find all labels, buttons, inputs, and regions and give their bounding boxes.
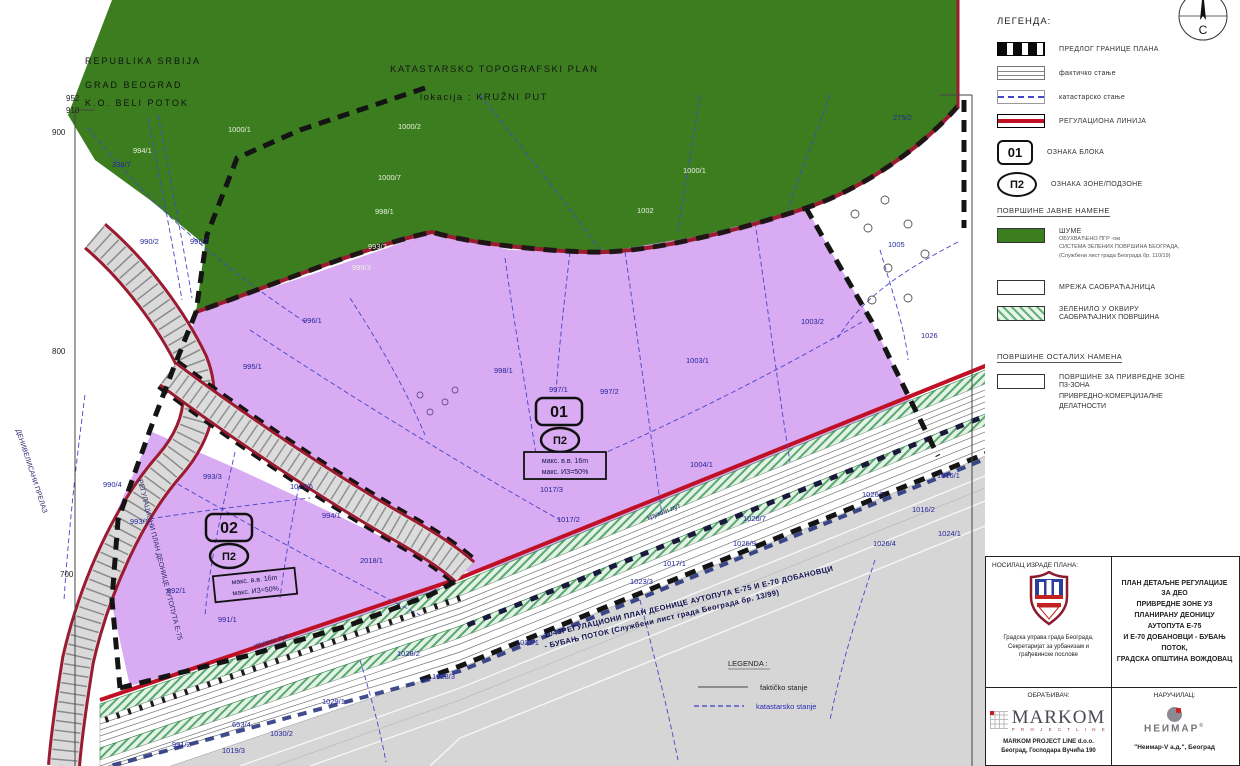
neimar-logo-text: НЕИМАР®: [1112, 723, 1237, 734]
header-republic: REPUBLIKA SRBIJA: [85, 56, 201, 66]
parcel-label: 991/1: [218, 615, 237, 624]
parcel-label: 995/1: [243, 362, 262, 371]
axis-label: 952: [66, 94, 80, 103]
svg-text:faktičko stanje: faktičko stanje: [760, 683, 808, 692]
parcel-label: 996/2: [190, 237, 209, 246]
parcel-label: 1002: [637, 206, 654, 215]
legend-item-forest: ШУМЕ ОБУХВАЋЕНО ПГР -ом СИСТЕМА ЗЕЛЕНИХ …: [997, 228, 1179, 260]
map-location: lokacija : KRUŽNI PUT: [420, 92, 548, 103]
parcel-label: 994/1: [133, 146, 152, 155]
legend-section-other: ПОВРШИНЕ ОСТАЛИХ НАМЕНА: [997, 352, 1122, 363]
legend-title: ЛЕГЕНДА:: [997, 16, 1051, 27]
parcel-label: 275/2: [893, 113, 912, 122]
plan-document: REPUBLIKA SRBIJA GRAD BEOGRAD K.O. BELI …: [0, 0, 1240, 766]
neimar-logo-icon: [1167, 707, 1182, 722]
header-cadastre-municipality: K.O. BELI POTOK: [85, 98, 189, 108]
economic-zone-symbol: [997, 374, 1045, 389]
axis-label: 900: [52, 128, 66, 137]
designer-cell: ОБРАЂИВАЧ: MARKOM P R O J E C T L I N E …: [986, 688, 1112, 765]
cadastre-state-symbol: [997, 90, 1045, 104]
plan-title-cell: ПЛАН ДЕТАЉНЕ РЕГУЛАЦИЈЕ ЗА ДЕО ПРИВРЕДНЕ…: [1112, 557, 1237, 688]
designer-name: MARKOM PROJECT LINE d.o.o. Београд, Госп…: [986, 738, 1111, 756]
parcel-label: 1003/1: [686, 356, 709, 365]
legend-item-greenery: ЗЕЛЕНИЛО У ОКВИРУ САОБРАЋАЈНИХ ПОВРШИНА: [997, 306, 1159, 324]
parcel-label: 1026/7: [743, 514, 766, 523]
parcel-label: 990/4: [103, 480, 122, 489]
legend-item-regulation-line: РЕГУЛАЦИОНА ЛИНИЈА: [997, 114, 1146, 128]
parcel-label: 1023/3: [630, 577, 653, 586]
parcel-label: 1017/2: [557, 515, 580, 524]
parcel-label: 991/2: [172, 740, 191, 749]
plan-boundary-symbol: [997, 42, 1045, 56]
parcel-label: 992/1: [167, 586, 186, 595]
parcel-label: 1005: [888, 240, 905, 249]
parcel-label: 1000/2: [398, 122, 421, 131]
forest-symbol: [997, 228, 1045, 243]
parcel-label: 1016/1: [937, 471, 960, 480]
parcel-label: 653/4: [232, 720, 251, 729]
markom-logo-subtext: P R O J E C T L I N E: [1012, 727, 1108, 732]
client-cell: НАРУЧИЛАЦ: НЕИМАР® "Неимар-V а.д.", Беог…: [1112, 688, 1237, 765]
parcel-label: 1028/2: [397, 649, 420, 658]
axis-label: 910: [66, 106, 80, 115]
markom-logo-icon: [990, 711, 1008, 729]
parcel-label: 1017/3: [540, 485, 563, 494]
parcel-label: 996/1: [303, 316, 322, 325]
legend-item-cadastre-state: катастарско стање: [997, 90, 1125, 104]
parcel-label: 1019/3: [222, 746, 245, 755]
parcel-label: 1022/1: [516, 638, 539, 647]
cadastral-map: REPUBLIKA SRBIJA GRAD BEOGRAD K.O. BELI …: [0, 0, 985, 766]
block-mark-symbol: 01: [997, 140, 1033, 165]
parcel-label: 1030/2: [270, 729, 293, 738]
parcel-label: 1017/6: [290, 482, 313, 491]
map-title: KATASTARSKO TOPOGRAFSKI PLAN: [390, 64, 598, 75]
parcel-label: 1017/1: [663, 559, 686, 568]
axis-label: 700: [60, 570, 74, 579]
zone-mark-symbol: П2: [997, 172, 1037, 197]
svg-text:LEGENDA :: LEGENDA :: [728, 659, 768, 668]
parcel-label: 1026/4: [873, 539, 896, 548]
client-label: НАРУЧИЛАЦ:: [1112, 692, 1237, 699]
parcel-label: 1026: [921, 331, 938, 340]
parcel-label: 1026/9: [733, 539, 756, 548]
svg-text:макс. в.в. 16m: макс. в.в. 16m: [542, 458, 588, 465]
svg-text:П2: П2: [553, 435, 567, 447]
legend-item-actual-state: фактичко стање: [997, 66, 1116, 80]
svg-text:01: 01: [550, 404, 568, 421]
plan-holder-organization: Градска управа града Београда, Секретари…: [986, 634, 1111, 660]
title-block: НОСИЛАЦ ИЗРАДЕ ПЛАНА: Градска управа гра…: [985, 556, 1240, 766]
svg-text:02: 02: [220, 520, 238, 537]
plan-holder-cell: НОСИЛАЦ ИЗРАДЕ ПЛАНА: Градска управа гра…: [986, 557, 1112, 688]
parcel-label: 1029/1: [322, 697, 345, 706]
parcel-label: 1004/1: [690, 460, 713, 469]
parcel-label: 1000/1: [228, 125, 251, 134]
svg-text:П2: П2: [222, 551, 236, 563]
parcel-label: 998/1: [375, 207, 394, 216]
header-city: GRAD BEOGRAD: [85, 80, 183, 90]
svg-text:katastarsko stanje: katastarsko stanje: [756, 702, 816, 711]
actual-state-symbol: [997, 66, 1045, 80]
parcel-label: 1000/7: [378, 173, 401, 182]
parcel-label: 997/1: [549, 385, 568, 394]
parcel-label: 999/3: [352, 263, 371, 272]
parcel-label: 993/1: [130, 517, 149, 526]
parcel-label: 993/2: [368, 242, 387, 251]
parcel-label: 993/3: [203, 472, 222, 481]
legend-item-economic-zone: ПОВРШИНЕ ЗА ПРИВРЕДНЕ ЗОНЕ П3-ЗОНА ПРИВР…: [997, 374, 1185, 413]
parcel-label: 1016/2: [912, 505, 935, 514]
plan-holder-label: НОСИЛАЦ ИЗРАДЕ ПЛАНА:: [992, 562, 1107, 569]
parcel-label: 990/2: [140, 237, 159, 246]
road-network-symbol: [997, 280, 1045, 295]
legend-section-public: ПОВРШИНЕ ЈАВНЕ НАМЕНЕ: [997, 206, 1110, 217]
legend-item-plan-boundary: ПРЕДЛОГ ГРАНИЦЕ ПЛАНА: [997, 42, 1159, 56]
regulation-line-symbol: [997, 114, 1045, 128]
axis-label: 800: [52, 347, 66, 356]
legend-item-block-mark: 01 ОЗНАКА БЛОКА: [997, 140, 1104, 165]
belgrade-coat-of-arms: [986, 571, 1112, 627]
compass-north-icon: С: [1168, 0, 1238, 52]
parcel-label: 1024/1: [938, 529, 961, 538]
parcel-label: 998/1: [494, 366, 513, 375]
parcel-label: 994/1: [322, 511, 341, 520]
parcel-label: 1000/1: [683, 166, 706, 175]
greenery-symbol: [997, 306, 1045, 321]
svg-text:макс. ИЗ=50%: макс. ИЗ=50%: [542, 469, 589, 476]
parcel-label: 1028/3: [432, 672, 455, 681]
parcel-label: 997/2: [600, 387, 619, 396]
markom-logo-text: MARKOM: [1012, 707, 1108, 729]
parcel-label: 2018/1: [360, 556, 383, 565]
designer-label: ОБРАЂИВАЧ:: [986, 692, 1111, 699]
legend-item-road-network: МРЕЖА САОБРАЋАЈНИЦА: [997, 280, 1155, 295]
compass-label: С: [1199, 23, 1208, 37]
parcel-label: 336/7: [112, 160, 131, 169]
parcel-label: 1026/5: [862, 490, 885, 499]
client-name: "Неимар-V а.д.", Београд: [1112, 744, 1237, 751]
parcel-label: 1003/2: [801, 317, 824, 326]
legend-item-zone-mark: П2 ОЗНАКА ЗОНЕ/ПОДЗОНЕ: [997, 172, 1142, 197]
